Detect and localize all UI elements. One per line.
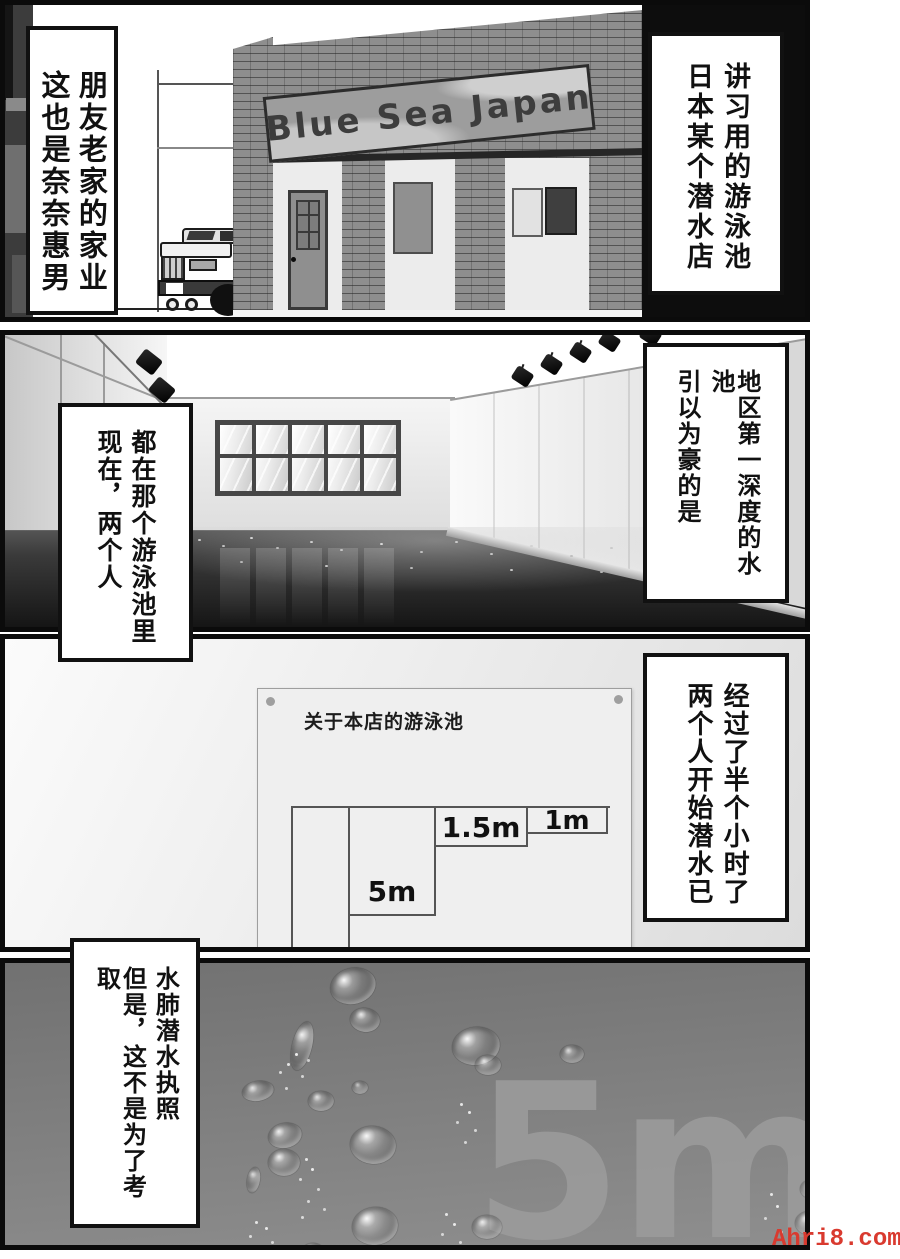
car-foglight	[166, 298, 179, 311]
bubble-cluster	[445, 1213, 448, 1216]
comic-page: Blue Sea Japan	[0, 0, 900, 1259]
bubble	[472, 1215, 502, 1239]
bubble	[308, 1091, 334, 1111]
door-window-grid	[296, 200, 320, 250]
spotlight	[568, 341, 592, 364]
bubble	[348, 1006, 381, 1034]
bubble-cluster	[305, 1158, 308, 1161]
bubble	[286, 1019, 318, 1072]
caption-text: 现在，两个人	[95, 429, 122, 591]
car-side-window	[220, 231, 234, 241]
window-pane	[364, 425, 396, 491]
door-knob	[291, 257, 296, 262]
bubble	[241, 1078, 276, 1103]
caption-box-p1-left: 这也是奈奈惠男 朋友老家的家业	[26, 26, 118, 315]
caption-text: 这也是奈奈惠男	[38, 70, 69, 294]
window-pane	[328, 425, 360, 491]
bubble	[475, 1055, 501, 1075]
car-foglight	[185, 298, 198, 311]
screw-icon	[614, 695, 623, 704]
bubble	[268, 1149, 300, 1176]
spotlight	[539, 353, 563, 376]
back-wall-line	[157, 147, 235, 149]
back-wall-line	[157, 83, 235, 85]
caption-text: 两个人开始潜水已	[684, 682, 712, 906]
car-license-plate	[166, 283, 183, 294]
site-watermark: Ahri8.com	[772, 1226, 900, 1253]
bubble	[348, 1124, 398, 1167]
brick-pillar	[233, 10, 273, 310]
depth-label-shallow: 1m	[526, 806, 608, 836]
caption-text: 引以为豪的是	[673, 369, 699, 525]
depth-label-deep: 5m	[348, 875, 436, 908]
bubble	[560, 1045, 584, 1063]
bubble-cluster	[255, 1221, 258, 1224]
caption-text: 朋友老家的家业	[75, 70, 106, 294]
caption-text: 水肺潜水执照	[151, 966, 177, 1122]
poster-board: 关于本店的游泳池 5m 1.5m 1m	[257, 688, 632, 952]
window-pane	[220, 425, 252, 491]
bubble-cluster	[460, 1103, 463, 1106]
screw-icon	[266, 697, 275, 706]
bubble	[302, 1243, 324, 1250]
caption-text: 经过了半个小时了	[720, 682, 748, 906]
entrance-door	[288, 190, 328, 310]
caption-box-p3-right: 两个人开始潜水已 经过了半个小时了	[643, 653, 789, 922]
window-reflection	[220, 548, 400, 627]
deep-shaft-left-wall	[291, 806, 293, 952]
spotlight	[597, 330, 621, 353]
depth-label-mid: 1.5m	[434, 811, 528, 844]
caption-text: 但是，这不是为了考取	[93, 966, 145, 1224]
caption-box-p4-left: 但是，这不是为了考取 水肺潜水执照	[70, 938, 200, 1228]
dark-frame	[545, 187, 577, 235]
window-crossbar	[215, 454, 401, 458]
caption-box-p1-right: 日本某个潜水店 讲习用的游泳池	[648, 32, 784, 295]
building-shadow	[0, 0, 13, 100]
light-frame	[512, 188, 543, 237]
window-pane	[292, 425, 324, 491]
window-pane	[256, 425, 288, 491]
bubble	[326, 963, 379, 1009]
depth-watermark: 5m	[473, 1066, 810, 1251]
caption-box-p2-left: 现在，两个人 都在那个游泳池里	[58, 403, 193, 662]
building-detail	[5, 145, 26, 233]
caption-text: 讲习用的游泳池	[720, 62, 749, 272]
ceiling-edge-back	[165, 397, 455, 399]
sidewalk	[233, 310, 645, 322]
caption-text: 地区第一深度的水池	[707, 369, 759, 599]
car-windshield	[187, 231, 216, 240]
water-light-patch	[105, 527, 705, 597]
bubble	[245, 1166, 262, 1194]
bubble-cluster	[770, 1193, 773, 1196]
bubble-cluster	[287, 1063, 290, 1066]
bubble	[350, 1205, 400, 1248]
bubble	[352, 1081, 368, 1094]
bubble	[266, 1120, 304, 1152]
caption-box-p2-right: 引以为豪的是 地区第一深度的水池	[643, 343, 789, 603]
car-grille	[161, 256, 185, 280]
suv-car	[158, 228, 244, 314]
wall-notice-panel	[393, 182, 433, 254]
caption-text: 都在那个游泳池里	[129, 429, 156, 645]
caption-text: 日本某个潜水店	[683, 62, 712, 272]
car-headlight	[189, 259, 217, 271]
poster-title: 关于本店的游泳池	[304, 707, 464, 734]
pool-window	[215, 420, 401, 496]
